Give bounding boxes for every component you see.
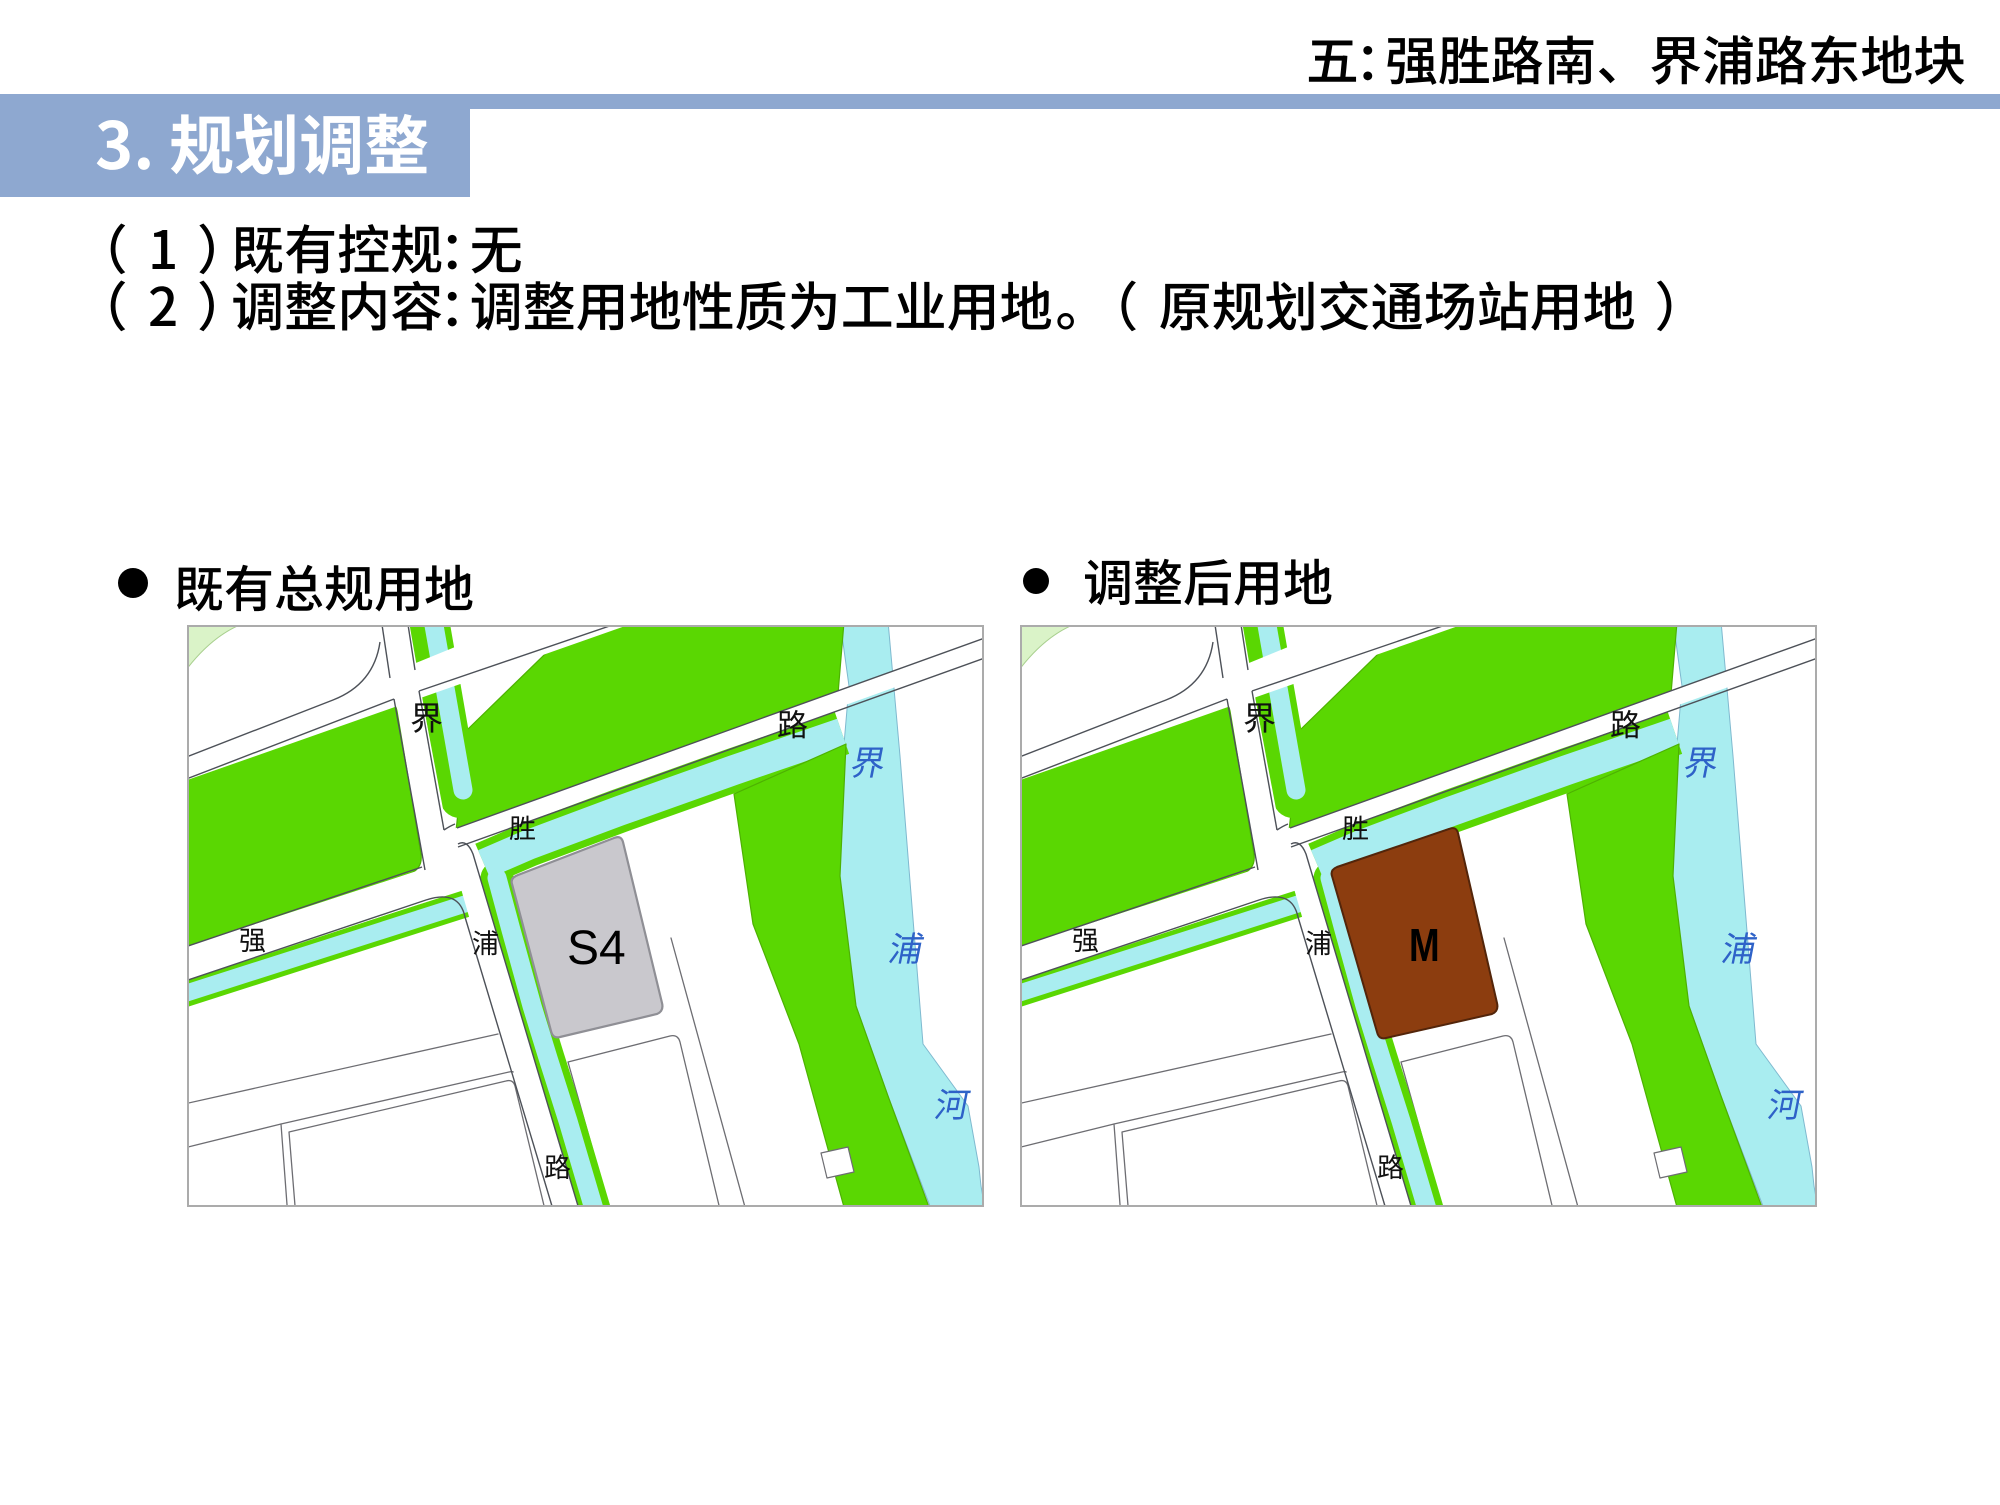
svg-text:S4: S4 <box>567 922 626 975</box>
svg-text:M: M <box>1409 919 1440 971</box>
